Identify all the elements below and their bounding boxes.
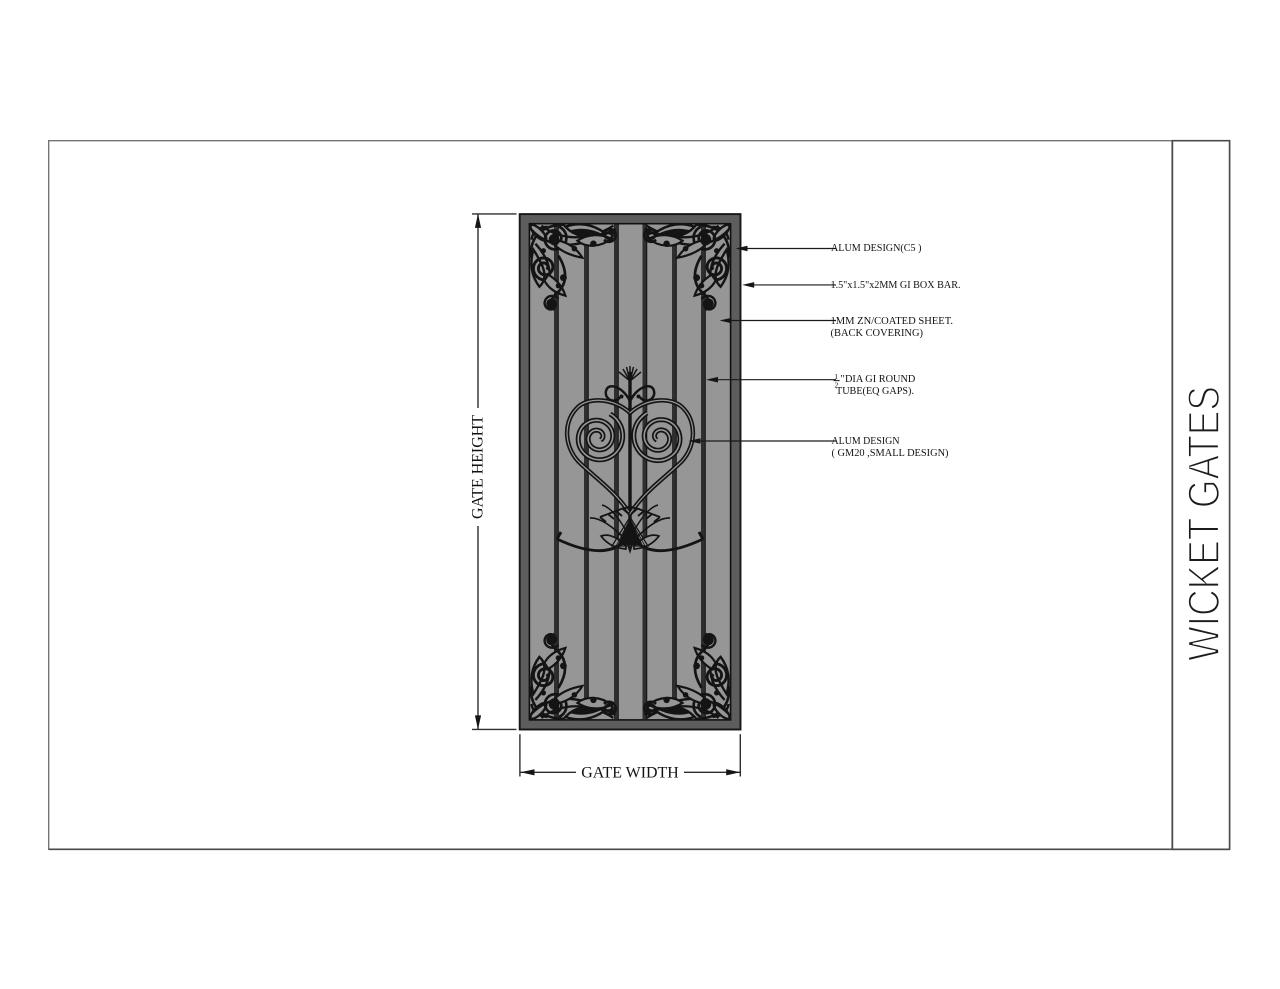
svg-text:": " — [840, 374, 844, 385]
svg-text:GATE WIDTH: GATE WIDTH — [581, 764, 679, 781]
svg-text:WICKET GATES: WICKET GATES — [1180, 386, 1229, 661]
svg-text:(BACK COVERING): (BACK COVERING) — [831, 328, 924, 339]
svg-text:( GM20 ,SMALL DESIGN): ( GM20 ,SMALL DESIGN) — [832, 448, 949, 459]
svg-text:1MM ZN/COATED SHEET.: 1MM ZN/COATED SHEET. — [831, 316, 954, 327]
svg-text:TUBE(EQ GAPS).: TUBE(EQ GAPS). — [836, 386, 914, 397]
svg-text:ALUM DESIGN(C5 ): ALUM DESIGN(C5 ) — [831, 243, 922, 254]
svg-text:DIA GI ROUND: DIA GI ROUND — [845, 374, 916, 385]
svg-text:1.5"x1.5"x2MM GI BOX BAR.: 1.5"x1.5"x2MM GI BOX BAR. — [831, 280, 961, 291]
svg-text:GATE HEIGHT: GATE HEIGHT — [470, 414, 487, 519]
svg-text:ALUM DESIGN: ALUM DESIGN — [832, 436, 901, 447]
